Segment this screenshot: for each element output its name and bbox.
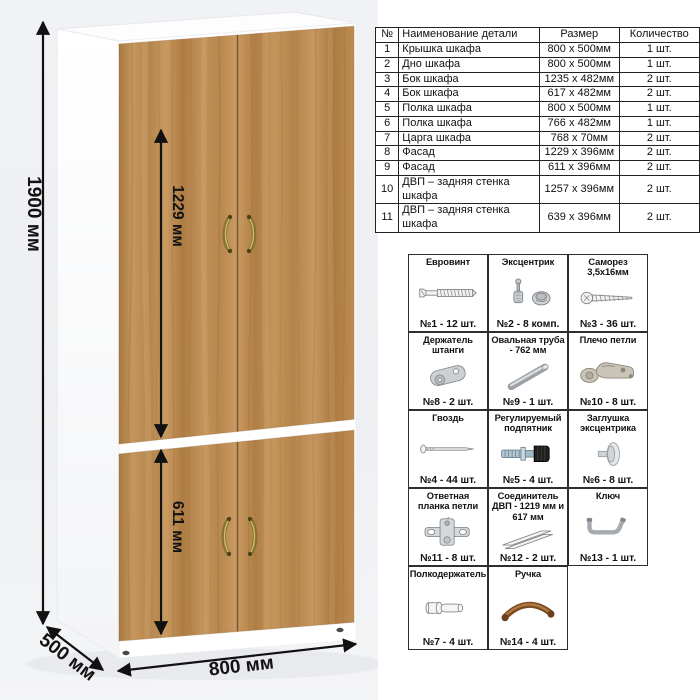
part-number: 5: [376, 102, 399, 117]
hardware-item-count: №1 - 12 шт.: [420, 319, 476, 330]
part-name: Фасад: [399, 146, 540, 161]
part-quantity: 2 шт.: [619, 131, 700, 146]
part-name: Дно шкафа: [399, 57, 540, 72]
hardware-item-count: №13 - 1 шт.: [580, 553, 636, 564]
part-number: 11: [376, 204, 399, 233]
hardware-item-name: Регулируемый подпятник: [490, 413, 566, 434]
part-number: 9: [376, 161, 399, 176]
hardware-item-name: Держатель штанги: [410, 335, 486, 356]
column-header: №: [376, 28, 399, 43]
hardware-item: Регулируемый подпятник№5 - 4 шт.: [488, 410, 568, 488]
height-dimension-label: 1900 мм: [23, 176, 44, 252]
part-number: 2: [376, 57, 399, 72]
hardware-item-name: Овальная труба - 762 мм: [490, 335, 566, 356]
hardware-item: Евровинт№1 - 12 шт.: [408, 254, 488, 332]
lower-facade-dimension-label: 611 мм: [169, 501, 186, 553]
wardrobe-illustration: 1900 мм 1229 мм 611 мм 800 мм 500 мм: [0, 0, 378, 700]
hardware-item-count: №8 - 2 шт.: [423, 397, 474, 408]
assembly-sheet: 1900 мм 1229 мм 611 мм 800 мм 500 мм №На…: [0, 0, 700, 700]
part-quantity: 2 шт.: [619, 146, 700, 161]
part-quantity: 1 шт.: [619, 43, 700, 58]
part-size: 1257 x 396мм: [540, 175, 619, 204]
self-tapping-screw-icon: [570, 278, 646, 319]
hardware-item-name: Заглушка эксцентрика: [570, 413, 646, 434]
part-number: 7: [376, 131, 399, 146]
hardware-item-count: №7 - 4 шт.: [423, 637, 474, 648]
cam-cover-icon: [570, 434, 646, 475]
part-name: Крышка шкафа: [399, 43, 540, 58]
table-row: 1Крышка шкафа800 x 500мм1 шт.: [376, 43, 700, 58]
nail-icon: [410, 423, 486, 475]
column-header: Наименование детали: [399, 28, 540, 43]
hardware-item: Эксцентрик№2 - 8 комп.: [488, 254, 568, 332]
table-row: 11ДВП – задняя стенка шкафа639 x 396мм2 …: [376, 204, 700, 233]
rod-holder-icon: [410, 356, 486, 397]
part-size: 1229 x 396мм: [540, 146, 619, 161]
part-quantity: 2 шт.: [619, 72, 700, 87]
wardrobe-foot: [122, 651, 129, 655]
hardware-item: Овальная труба - 762 мм№9 - 1 шт.: [488, 332, 568, 410]
hardware-item-count: №12 - 2 шт.: [500, 553, 556, 564]
part-name: ДВП – задняя стенка шкафа: [399, 204, 540, 233]
part-number: 10: [376, 175, 399, 204]
hardware-item-count: №2 - 8 комп.: [497, 319, 560, 330]
hardware-item-name: Соединитель ДВП - 1219 мм и 617 мм: [490, 491, 566, 522]
table-row: 10ДВП – задняя стенка шкафа1257 x 396мм2…: [376, 175, 700, 204]
part-name: ДВП – задняя стенка шкафа: [399, 175, 540, 204]
upper-facade-dimension-label: 1229 мм: [169, 185, 186, 247]
hardware-item-count: №9 - 1 шт.: [503, 397, 554, 408]
part-size: 611 x 396мм: [540, 161, 619, 176]
part-size: 768 x 70мм: [540, 131, 619, 146]
part-quantity: 1 шт.: [619, 102, 700, 117]
hardware-item-count: №11 - 8 шт.: [420, 553, 476, 564]
hdf-connector-icon: [490, 522, 566, 553]
column-header: Количество: [619, 28, 700, 43]
shelf-pin-icon: [410, 579, 486, 637]
part-name: Полка шкафа: [399, 116, 540, 131]
hardware-item-name: Эксцентрик: [502, 257, 554, 267]
wardrobe-photo-panel: 1900 мм 1229 мм 611 мм 800 мм 500 мм: [0, 0, 378, 700]
cam-lock-icon: [490, 267, 566, 319]
part-size: 766 x 482мм: [540, 116, 619, 131]
hardware-item-count: №5 - 4 шт.: [503, 475, 554, 486]
wardrobe-foot: [336, 628, 343, 632]
part-size: 1235 x 482мм: [540, 72, 619, 87]
part-quantity: 2 шт.: [619, 204, 700, 233]
wardrobe-body: [57, 0, 356, 700]
wardrobe-left-side-panel: [57, 29, 119, 658]
hardware-item-name: Саморез 3,5х16мм: [570, 257, 646, 278]
hardware-item: Плечо петли№10 - 8 шт.: [568, 332, 648, 410]
hardware-item-count: №3 - 36 шт.: [580, 319, 636, 330]
hardware-item-count: №6 - 8 шт.: [583, 475, 634, 486]
table-row: 7Царга шкафа768 x 70мм2 шт.: [376, 131, 700, 146]
hardware-item-name: Ответная планка петли: [410, 491, 486, 512]
part-size: 800 x 500мм: [540, 57, 619, 72]
hardware-item-count: №14 - 4 шт.: [500, 637, 556, 648]
part-size: 800 x 500мм: [540, 43, 619, 58]
part-size: 617 x 482мм: [540, 87, 619, 102]
table-row: 5Полка шкафа800 x 500мм1 шт.: [376, 102, 700, 117]
hardware-item-name: Плечо петли: [580, 335, 637, 345]
part-quantity: 2 шт.: [619, 87, 700, 102]
part-quantity: 2 шт.: [619, 175, 700, 204]
table-row: 2Дно шкафа800 x 500мм1 шт.: [376, 57, 700, 72]
column-header: Размер: [540, 28, 619, 43]
part-quantity: 1 шт.: [619, 116, 700, 131]
adjustable-foot-icon: [490, 434, 566, 475]
part-number: 1: [376, 43, 399, 58]
hardware-item: Полкодержатель№7 - 4 шт.: [408, 566, 488, 650]
hardware-item-name: Ключ: [596, 491, 620, 501]
hardware-grid: Евровинт№1 - 12 шт.Эксцентрик№2 - 8 комп…: [408, 254, 648, 650]
parts-table: №Наименование деталиРазмерКоличество 1Кр…: [375, 27, 700, 233]
part-number: 3: [376, 72, 399, 87]
table-row: 4Бок шкафа617 x 482мм2 шт.: [376, 87, 700, 102]
hardware-item: Ответная планка петли№11 - 8 шт.: [408, 488, 488, 566]
part-number: 4: [376, 87, 399, 102]
hardware-item: Заглушка эксцентрика№6 - 8 шт.: [568, 410, 648, 488]
hex-key-icon: [570, 501, 646, 553]
part-name: Царга шкафа: [399, 131, 540, 146]
table-row: 6Полка шкафа766 x 482мм1 шт.: [376, 116, 700, 131]
hardware-item: Ключ№13 - 1 шт.: [568, 488, 648, 566]
hardware-item-name: Ручка: [515, 569, 541, 579]
hardware-item: Ручка№14 - 4 шт.: [488, 566, 568, 650]
hinge-plate-icon: [410, 512, 486, 553]
parts-table-header: №Наименование деталиРазмерКоличество: [376, 28, 700, 43]
part-size: 800 x 500мм: [540, 102, 619, 117]
part-number: 6: [376, 116, 399, 131]
hardware-item: Соединитель ДВП - 1219 мм и 617 мм№12 - …: [488, 488, 568, 566]
table-row: 3Бок шкафа1235 x 482мм2 шт.: [376, 72, 700, 87]
part-name: Фасад: [399, 161, 540, 176]
part-name: Бок шкафа: [399, 87, 540, 102]
oval-tube-icon: [490, 356, 566, 397]
hardware-item-name: Полкодержатель: [410, 569, 487, 579]
hardware-item: Саморез 3,5х16мм№3 - 36 шт.: [568, 254, 648, 332]
part-name: Бок шкафа: [399, 72, 540, 87]
part-quantity: 2 шт.: [619, 161, 700, 176]
euro-screw-icon: [410, 267, 486, 319]
hardware-item-name: Гвоздь: [432, 413, 464, 423]
hardware-item: Держатель штанги№8 - 2 шт.: [408, 332, 488, 410]
part-size: 639 x 396мм: [540, 204, 619, 233]
part-number: 8: [376, 146, 399, 161]
hardware-item-count: №4 - 44 шт.: [420, 475, 476, 486]
part-name: Полка шкафа: [399, 102, 540, 117]
part-quantity: 1 шт.: [619, 57, 700, 72]
table-row: 8Фасад1229 x 396мм2 шт.: [376, 146, 700, 161]
table-row: 9Фасад611 x 396мм2 шт.: [376, 161, 700, 176]
handle-icon: [490, 579, 566, 637]
hinge-arm-icon: [570, 345, 646, 397]
hardware-item: Гвоздь№4 - 44 шт.: [408, 410, 488, 488]
hardware-item-name: Евровинт: [426, 257, 470, 267]
hardware-item-count: №10 - 8 шт.: [580, 397, 636, 408]
